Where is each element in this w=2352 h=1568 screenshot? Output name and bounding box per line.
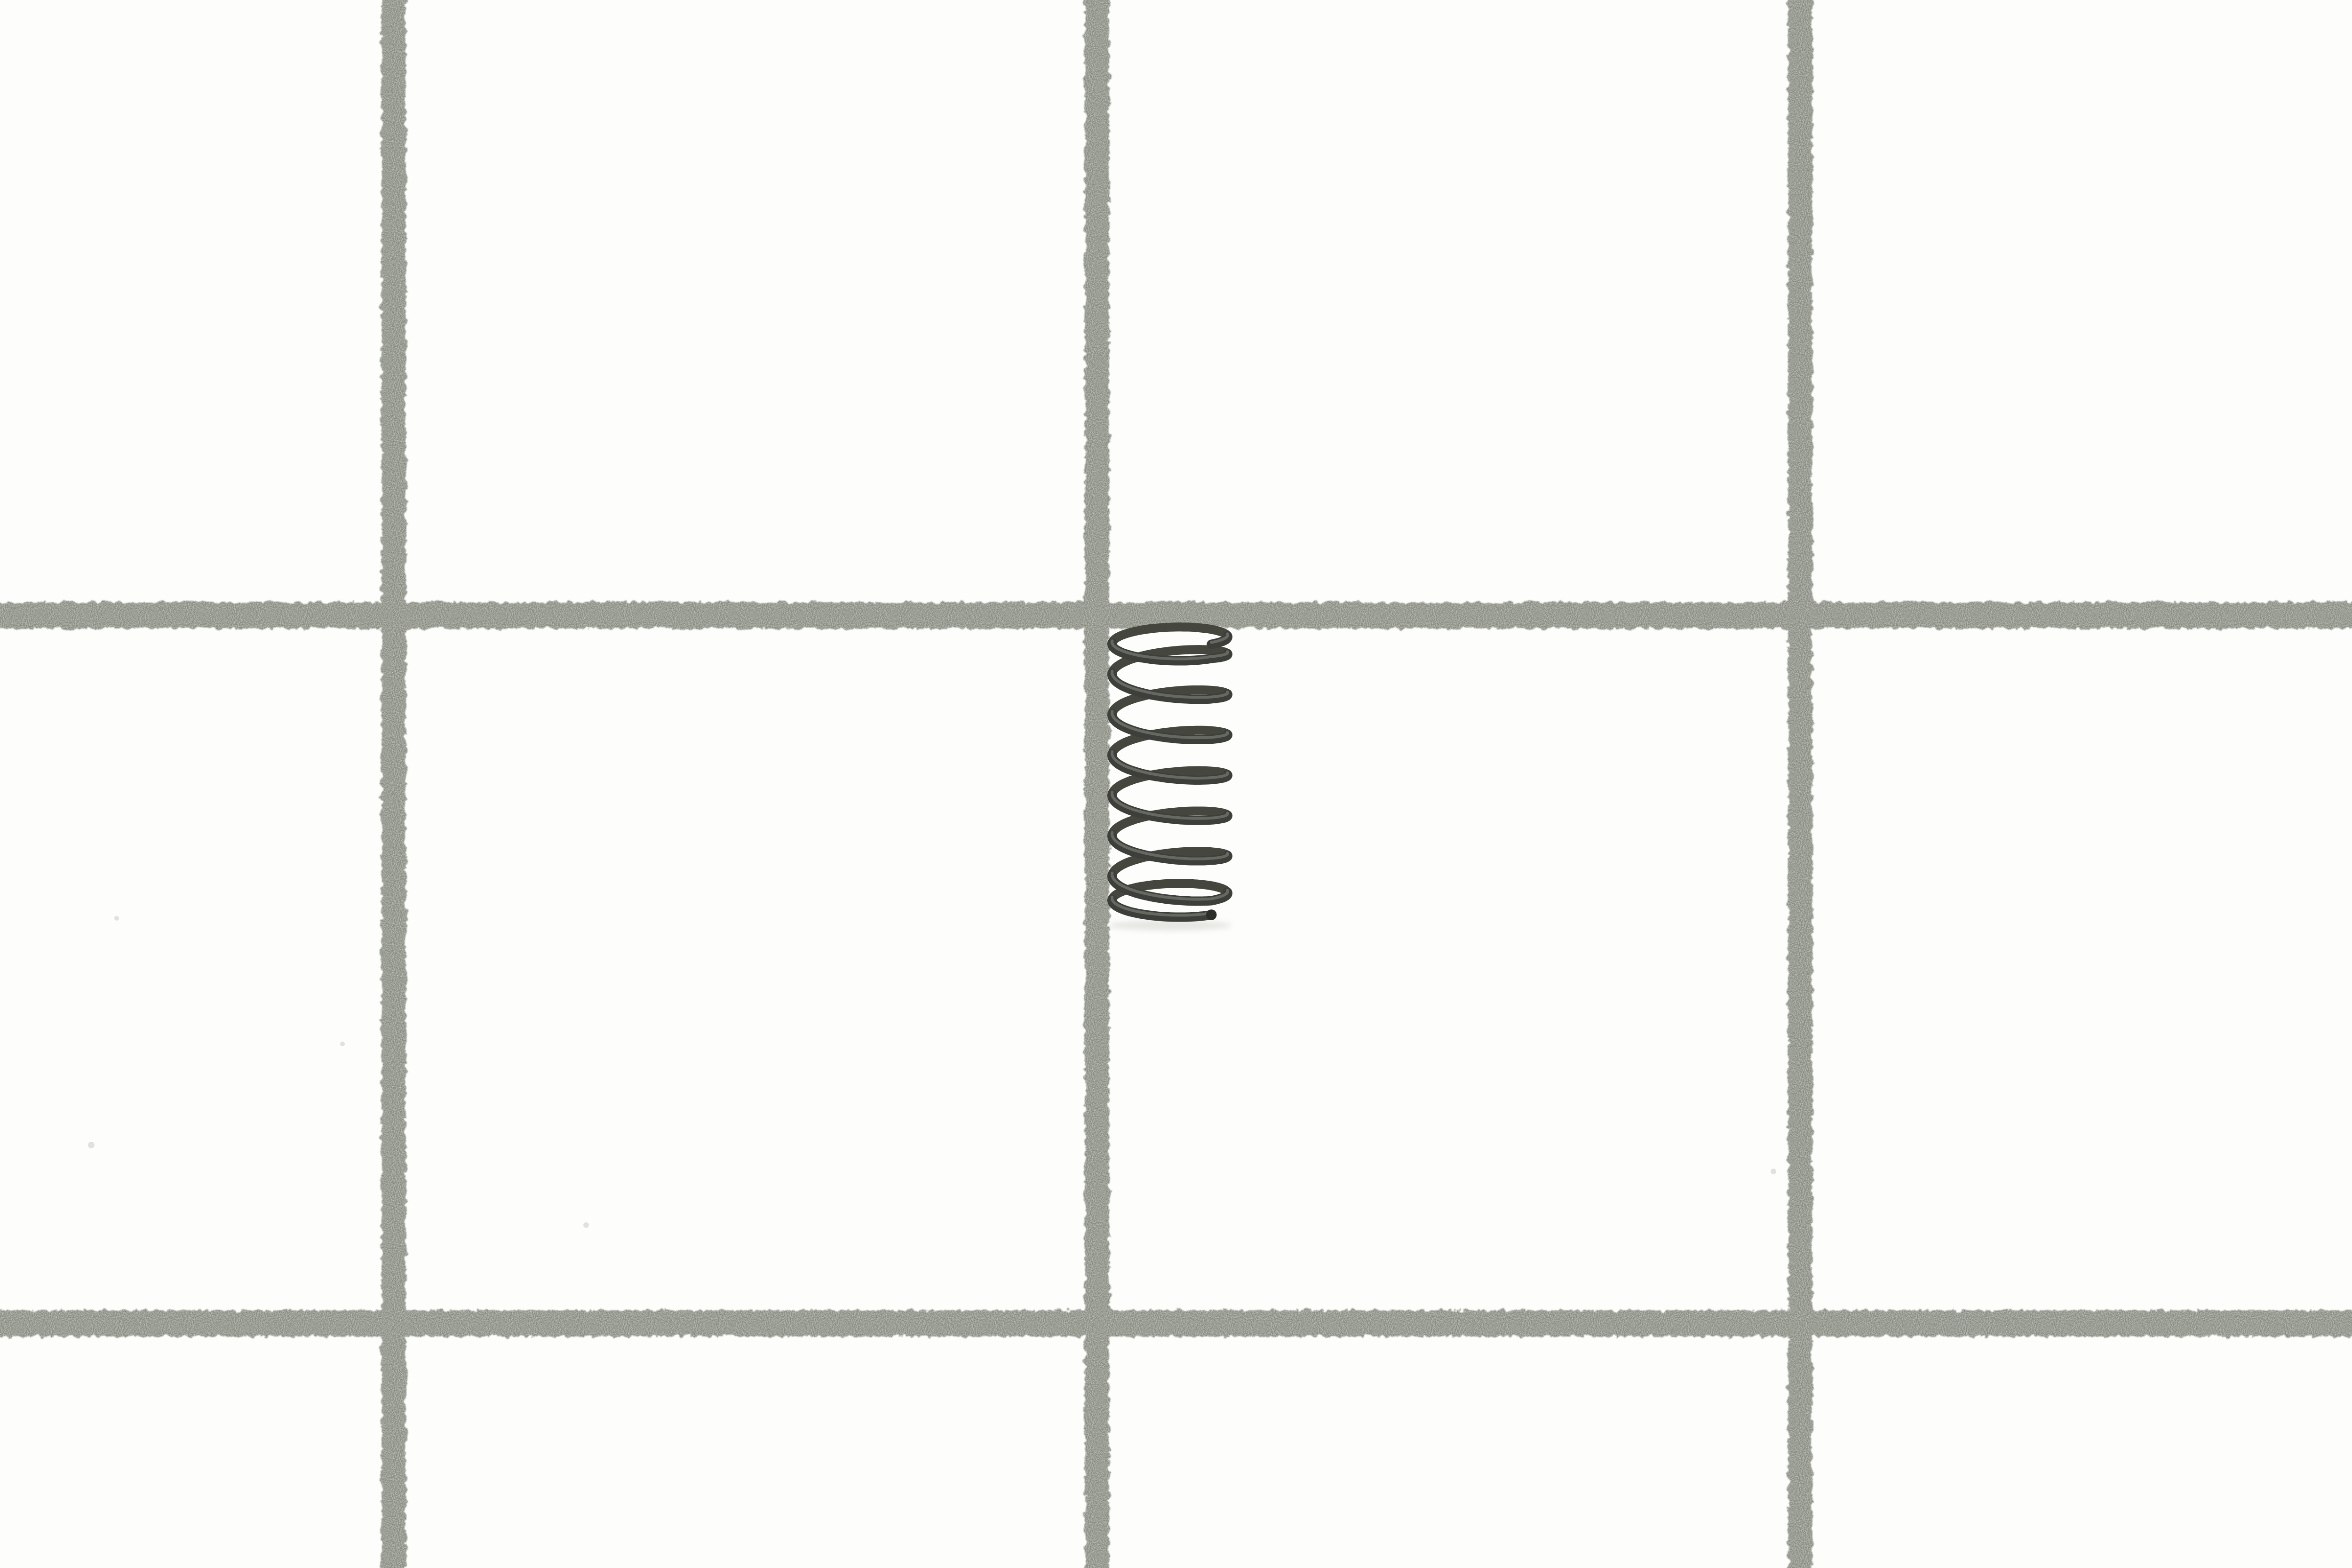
- dust-speck: [340, 1042, 345, 1046]
- spring-wire-tip: [1206, 909, 1216, 920]
- spring-shadow: [1108, 920, 1232, 931]
- spring-coil-back: [1113, 627, 1227, 642]
- compression-spring: [1108, 627, 1232, 931]
- dust-speck: [1771, 1169, 1776, 1174]
- photo-canvas: [0, 0, 2352, 1568]
- dust-speck: [583, 1222, 589, 1228]
- grid-lines: [0, 0, 2352, 1568]
- scene-svg: [0, 0, 2352, 1568]
- grid-line-horizontal: [0, 1310, 2352, 1337]
- dust-specks: [88, 916, 1776, 1228]
- dust-speck: [88, 1142, 95, 1148]
- dust-speck: [114, 916, 119, 921]
